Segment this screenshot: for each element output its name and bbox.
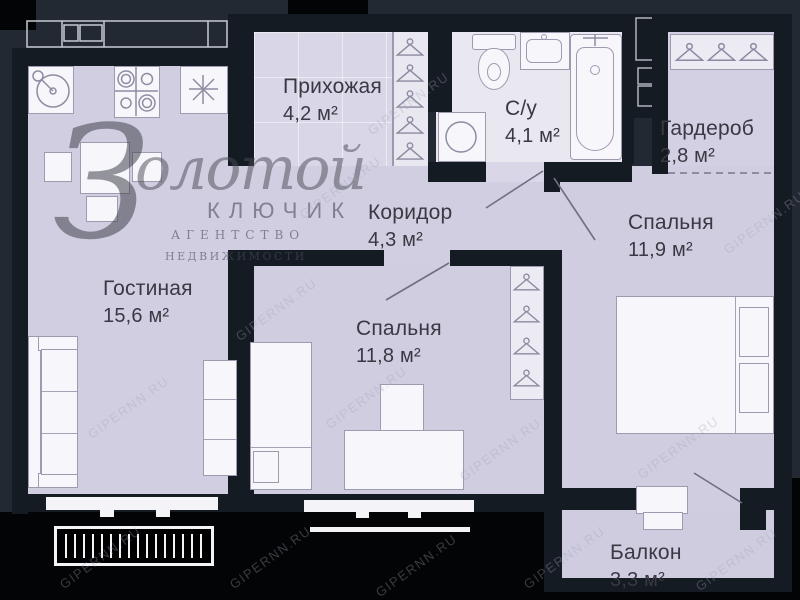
pillow (739, 307, 769, 357)
floor-plan: Прихожая 4,2 м² С/у 4,1 м² Гардероб 2,8 … (0, 0, 800, 600)
window-mullion (156, 508, 170, 517)
room-name: Гардероб (660, 116, 754, 141)
room-name: Гостиная (103, 276, 193, 301)
room-label-corridor: Коридор 4,3 м² (368, 200, 452, 252)
exterior-edge (792, 478, 800, 600)
door-post (544, 162, 560, 192)
wardrobe-hanger-rail (670, 34, 774, 70)
wall (428, 162, 486, 182)
chair (44, 152, 72, 182)
room-area: 4,3 м² (368, 228, 452, 252)
wall (254, 14, 434, 32)
wall (450, 250, 546, 266)
room-area: 4,2 м² (283, 102, 382, 126)
hanger-icon (674, 41, 705, 65)
room-label-hallway: Прихожая 4,2 м² (283, 74, 382, 126)
fridge-icon (180, 66, 228, 114)
wall (544, 250, 562, 592)
wall (12, 48, 238, 66)
hanger-icon (512, 368, 541, 390)
balcony-door-gap (688, 488, 740, 510)
room-label-bathroom: С/у 4,1 м² (505, 96, 560, 148)
kitchen-sink-icon (28, 66, 74, 114)
wall (228, 14, 254, 166)
toilet-icon (472, 34, 516, 92)
room-label-bedroom1: Спальня 11,9 м² (628, 210, 714, 262)
cabinet (203, 360, 237, 476)
window-mullion (100, 508, 114, 517)
stove-icon (114, 66, 160, 118)
closet-bedroom2 (510, 266, 544, 400)
washbasin-icon (520, 32, 570, 70)
hanger-icon (395, 89, 425, 111)
hanger-icon (512, 336, 541, 358)
room-name: Спальня (628, 210, 714, 235)
hanger-icon (512, 304, 541, 326)
room-area: 11,8 м² (356, 344, 442, 368)
room-area: 3,3 м² (610, 568, 682, 592)
window-sill (310, 527, 470, 532)
closet-hallway-hangers (393, 32, 427, 166)
window-mullion (408, 510, 421, 518)
kitchen-upper-cabinets-outline (26, 20, 228, 48)
window (46, 497, 218, 510)
chair (132, 152, 162, 182)
room-area: 15,6 м² (103, 304, 193, 328)
washing-machine-icon (438, 112, 486, 162)
wall (452, 14, 632, 32)
room-name: С/у (505, 96, 560, 121)
room-name: Коридор (368, 200, 452, 225)
wall (428, 14, 452, 112)
dining-table (80, 142, 130, 194)
wall (238, 250, 384, 266)
room-name: Спальня (356, 316, 442, 341)
room-area: 2,8 м² (660, 144, 754, 168)
window-mullion (356, 510, 369, 518)
bathtub-icon (570, 34, 622, 160)
door-post (740, 488, 766, 530)
window (304, 500, 474, 512)
desk (344, 430, 464, 490)
wall (12, 48, 28, 514)
bathroom-door-gap (486, 162, 546, 182)
balcony-railing (54, 526, 214, 566)
hanger-icon (395, 37, 425, 59)
hanger-icon (395, 115, 425, 137)
sofa (28, 336, 78, 488)
room-label-balcony: Балкон 3,3 м² (610, 540, 682, 592)
room-label-wardrobe: Гардероб 2,8 м² (660, 116, 754, 168)
room-label-bedroom2: Спальня 11,8 м² (356, 316, 442, 368)
chair (86, 196, 118, 222)
room-name: Балкон (610, 540, 682, 565)
hanger-icon (395, 63, 425, 85)
pillow (739, 363, 769, 413)
balcony-door-leaf (643, 512, 683, 530)
hanger-icon (395, 141, 425, 163)
hanger-icon (738, 41, 769, 65)
bedroom2-door-gap (384, 250, 450, 266)
double-bed (616, 296, 774, 434)
wall (774, 14, 792, 492)
balcony-window (636, 486, 688, 514)
wall (774, 488, 792, 592)
wall (652, 14, 792, 32)
room-area: 4,1 м² (505, 124, 560, 148)
wall (562, 488, 638, 510)
chair (380, 384, 424, 432)
room-label-living: Гостиная 15,6 м² (103, 276, 193, 328)
hanger-icon (706, 41, 737, 65)
hanger-icon (512, 272, 541, 294)
room-name: Прихожая (283, 74, 382, 99)
room-area: 11,9 м² (628, 238, 714, 262)
bed (250, 342, 312, 490)
